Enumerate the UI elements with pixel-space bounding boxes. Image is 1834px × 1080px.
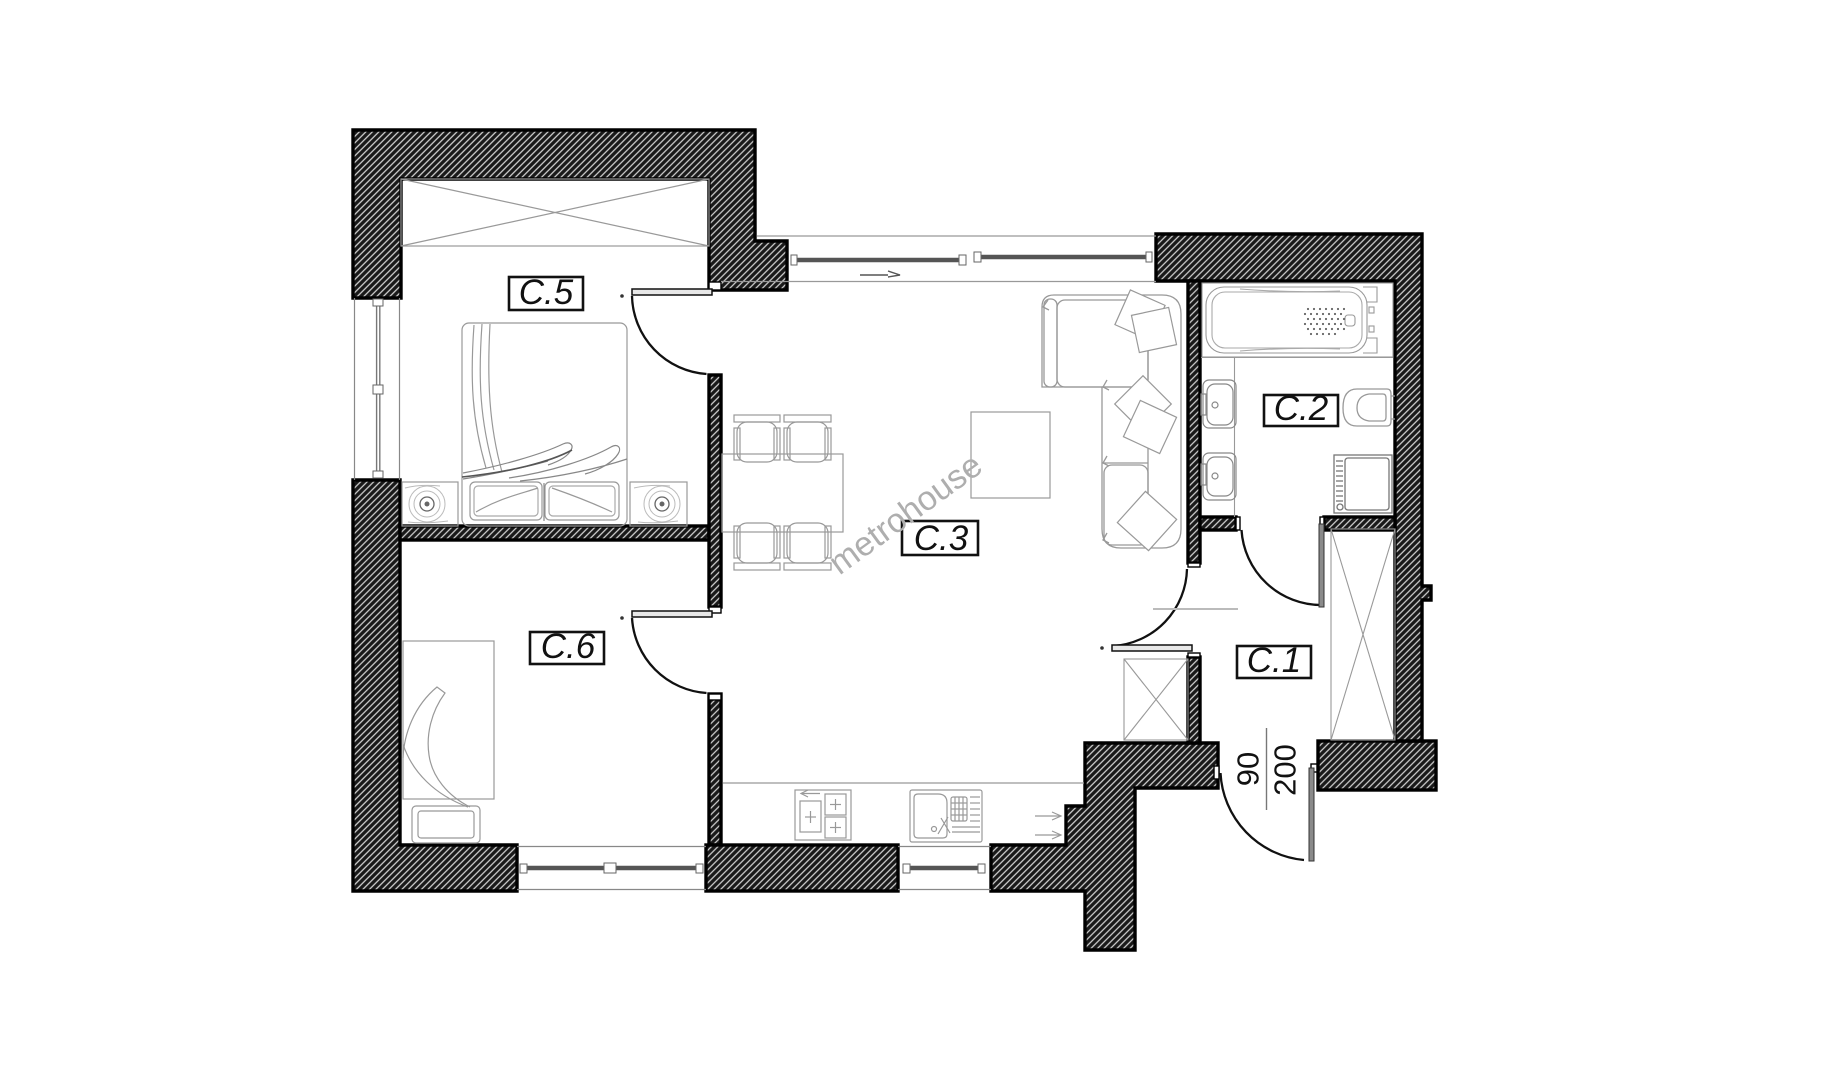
svg-text:C.6: C.6: [541, 627, 596, 666]
svg-text:90: 90: [1231, 752, 1266, 786]
svg-text:200: 200: [1268, 744, 1303, 796]
svg-text:C.2: C.2: [1274, 389, 1328, 428]
svg-text:C.5: C.5: [519, 273, 574, 312]
svg-text:C.1: C.1: [1247, 641, 1301, 680]
